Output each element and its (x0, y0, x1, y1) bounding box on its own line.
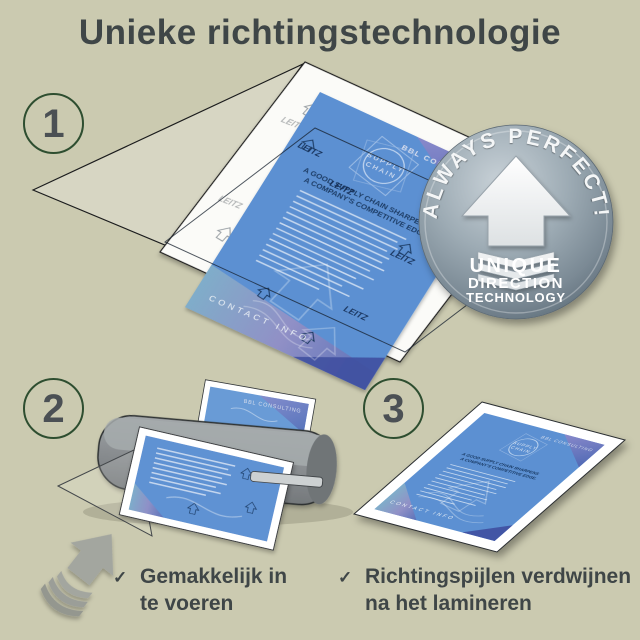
step3-caption: ✓ Richtingspijlen verdwijnen na het lami… (338, 563, 638, 617)
step3-caption-line1: Richtingspijlen verdwijnen (365, 563, 638, 590)
step2-badge: 2 (23, 378, 84, 439)
check-icon: ✓ (113, 564, 127, 591)
step3-number: 3 (382, 389, 404, 429)
step1-number: 1 (42, 104, 64, 144)
step3-badge: 3 (363, 378, 424, 439)
step2-laminator-illustration: BBL CONSULTING (58, 380, 353, 550)
step2-caption: ✓ Gemakkelijk in te voeren (113, 563, 333, 617)
infographic-canvas: Unieke richtingstechnologie (0, 0, 640, 640)
step1-badge: 1 (23, 93, 84, 154)
badge: ALWAYS PERFECT! UNIQUE DIRECTION TECHNOL… (419, 125, 613, 319)
step2-caption-line2: te voeren (140, 590, 333, 617)
illustration: LEITZ LEITZ LEITZ BBL (0, 0, 640, 640)
step2-number: 2 (42, 389, 64, 429)
badge-label-3: TECHNOLOGY (466, 290, 566, 305)
step2-caption-line1: Gemakkelijk in (140, 563, 333, 590)
step3-caption-line2: na het lamineren (365, 590, 638, 617)
badge-label-1: UNIQUE (470, 255, 563, 277)
check-icon: ✓ (338, 564, 352, 591)
